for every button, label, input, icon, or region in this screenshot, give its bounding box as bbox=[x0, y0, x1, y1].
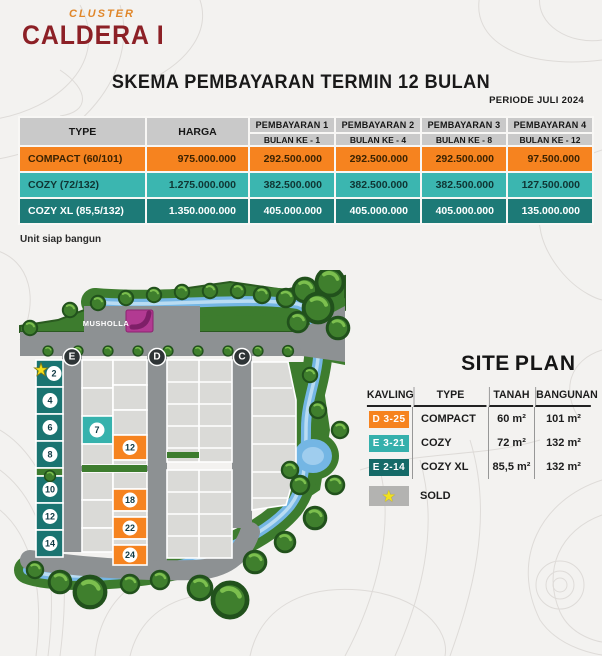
legend-bangunan: 101 m² bbox=[534, 407, 592, 431]
payment-cell: 405.000.000 bbox=[421, 198, 507, 224]
legend-tanah: 85,5 m² bbox=[488, 455, 534, 479]
payment-header-2: PEMBAYARAN 2 bbox=[335, 117, 421, 133]
payment-cell: 382.500.000 bbox=[249, 172, 335, 198]
period-label: PERIODE JULI 2024 bbox=[489, 95, 584, 106]
legend-tanah: 72 m² bbox=[488, 431, 534, 455]
harga-cell: 1.350.000.000 bbox=[146, 198, 249, 224]
svg-text:D: D bbox=[153, 352, 160, 363]
svg-text:E: E bbox=[69, 352, 76, 363]
lot-number: 22 bbox=[125, 523, 135, 533]
road-label-d: D bbox=[149, 349, 166, 366]
bulan-subheader-3: BULAN KE - 8 bbox=[421, 133, 507, 146]
harga-cell: 1.275.000.000 bbox=[146, 172, 249, 198]
svg-text:C: C bbox=[238, 352, 245, 363]
map-lot bbox=[82, 472, 113, 500]
site-plan-title: SITEPLAN bbox=[366, 352, 592, 376]
map-lot bbox=[113, 410, 147, 435]
musholla-building bbox=[126, 310, 153, 332]
payment-cell: 135.000.000 bbox=[507, 198, 593, 224]
lot-number: 8 bbox=[47, 450, 52, 460]
type-cell: COZY XL (85,5/132) bbox=[19, 198, 146, 224]
lot-number: 12 bbox=[45, 512, 55, 522]
flyer-page: CLUSTER CALDERA I SKEMA PEMBAYARAN TERMI… bbox=[0, 0, 602, 656]
type-cell: COZY (72/132) bbox=[19, 172, 146, 198]
bulan-subheader-2: BULAN KE - 4 bbox=[335, 133, 421, 146]
legend-type: COZY XL bbox=[412, 455, 488, 479]
type-header: TYPE bbox=[19, 117, 146, 146]
payment-cell: 292.500.000 bbox=[335, 146, 421, 172]
payment-header-4: PEMBAYARAN 4 bbox=[507, 117, 593, 133]
legend-kavling-chip: E 2-14 bbox=[366, 455, 412, 479]
legend-type: COMPACT bbox=[412, 407, 488, 431]
map-lot bbox=[113, 385, 147, 410]
legend-kavling-chip: E 3-21 bbox=[366, 431, 412, 455]
legend-sold-label: SOLD bbox=[412, 484, 488, 508]
musholla-label: MUSHOLLA bbox=[83, 319, 130, 328]
map-lot bbox=[82, 500, 113, 528]
road-label-c: C bbox=[234, 349, 251, 366]
road-label-e: E bbox=[64, 349, 81, 366]
payment-cell: 292.500.000 bbox=[421, 146, 507, 172]
map-lot bbox=[82, 528, 113, 552]
lot-number: 14 bbox=[45, 539, 55, 549]
payment-cell: 382.500.000 bbox=[335, 172, 421, 198]
legend-kavling-chip: D 3-25 bbox=[366, 407, 412, 431]
lot-number: 10 bbox=[45, 485, 55, 495]
site-plan-legend: SITEPLAN KAVLING TYPE TANAH BANGUNAN D 3… bbox=[366, 352, 592, 508]
harga-header: HARGA bbox=[146, 117, 249, 146]
payment-cell: 97.500.000 bbox=[507, 146, 593, 172]
lot-number: 2 bbox=[51, 369, 56, 379]
bulan-subheader-1: BULAN KE - 1 bbox=[249, 133, 335, 146]
payment-cell: 127.500.000 bbox=[507, 172, 593, 198]
payment-cell: 292.500.000 bbox=[249, 146, 335, 172]
legend-bangunan: 132 m² bbox=[534, 455, 592, 479]
payment-header-3: PEMBAYARAN 3 bbox=[421, 117, 507, 133]
legend-tanah: 60 m² bbox=[488, 407, 534, 431]
legend-bangunan: 132 m² bbox=[534, 431, 592, 455]
logo-name: CALDERA I bbox=[22, 20, 169, 51]
payment-cell: 382.500.000 bbox=[421, 172, 507, 198]
legend-header-bangunan: BANGUNAN bbox=[535, 387, 591, 407]
sold-star-icon: ★ bbox=[382, 489, 395, 503]
lot-number: 24 bbox=[125, 550, 135, 560]
cluster-logo: CLUSTER CALDERA I bbox=[22, 8, 182, 51]
type-cell: COMPACT (60/101) bbox=[19, 146, 146, 172]
legend-header-tanah: TANAH bbox=[489, 387, 533, 407]
payment-cell: 405.000.000 bbox=[249, 198, 335, 224]
table-row-compact: COMPACT (60/101) 975.000.000 292.500.000… bbox=[19, 146, 593, 172]
harga-cell: 975.000.000 bbox=[146, 146, 249, 172]
payment-cell: 405.000.000 bbox=[335, 198, 421, 224]
logo-cluster-label: CLUSTER bbox=[22, 8, 182, 20]
map-lot bbox=[82, 444, 113, 465]
table-row-cozy: COZY (72/132) 1.275.000.000 382.500.000 … bbox=[19, 172, 593, 198]
legend-sold-chip: ★ bbox=[366, 484, 412, 508]
map-lot bbox=[113, 360, 147, 385]
legend-header-kavling: KAVLING bbox=[367, 387, 411, 407]
map-lot bbox=[82, 388, 113, 416]
bulan-subheader-4: BULAN KE - 12 bbox=[507, 133, 593, 146]
lot-number: 12 bbox=[125, 443, 135, 453]
lot-number: 18 bbox=[125, 495, 135, 505]
legend-header-type: TYPE bbox=[414, 387, 487, 407]
map-lot bbox=[82, 360, 113, 388]
map-lot bbox=[113, 472, 147, 489]
table-row-cozy-xl: COZY XL (85,5/132) 1.350.000.000 405.000… bbox=[19, 198, 593, 224]
legend-type: COZY bbox=[412, 431, 488, 455]
page-title: SKEMA PEMBAYARAN TERMIN 12 BULAN bbox=[15, 72, 587, 94]
availability-note: Unit siap bangun bbox=[20, 234, 101, 245]
legend-table: KAVLING TYPE TANAH BANGUNAN D 3-25 COMPA… bbox=[366, 387, 592, 508]
payment-header-1: PEMBAYARAN 1 bbox=[249, 117, 335, 133]
payment-table: TYPE HARGA PEMBAYARAN 1 PEMBAYARAN 2 PEM… bbox=[18, 116, 594, 225]
lot-number: 6 bbox=[47, 423, 52, 433]
lot-number: 4 bbox=[47, 396, 52, 406]
lot-number: 7 bbox=[94, 425, 99, 435]
